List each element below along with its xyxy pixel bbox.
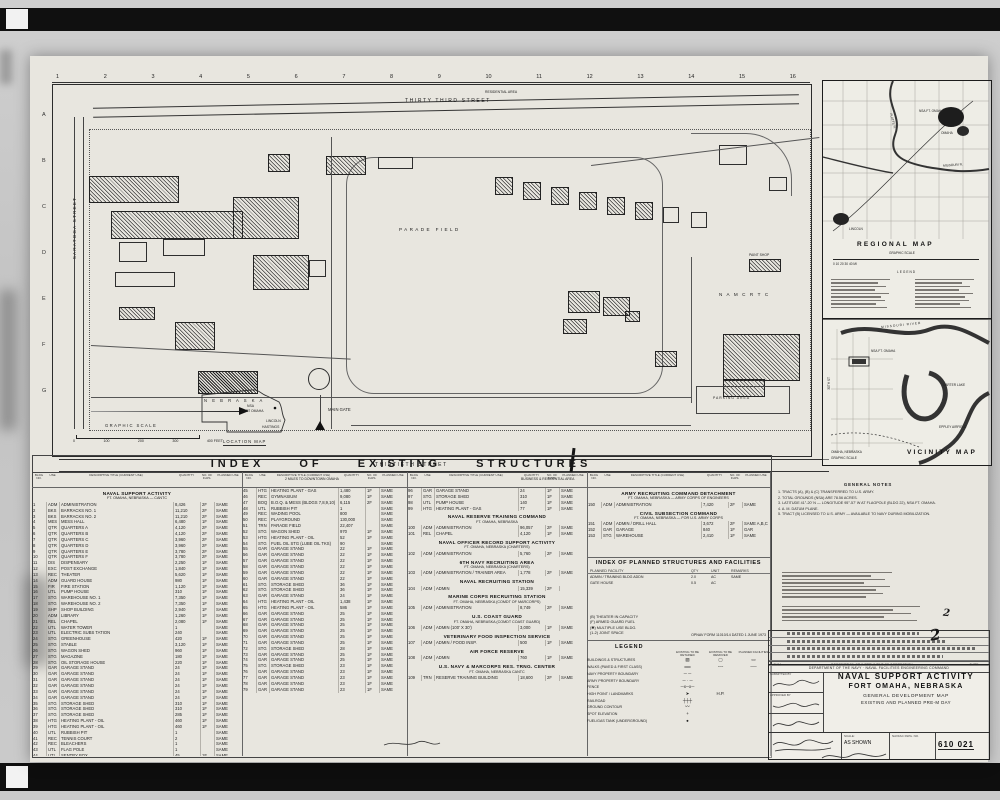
illegible-text-line — [915, 282, 962, 284]
grid-number: 16 — [790, 74, 796, 80]
title-block-main: NAVAL SUPPORT ACTIVITY FORT OMAHA, NEBRA… — [823, 672, 989, 705]
revision-row — [769, 653, 989, 660]
regional-map-drawing — [823, 81, 989, 239]
building — [111, 211, 243, 239]
building — [625, 311, 640, 322]
illegible-text-line — [782, 596, 866, 598]
index-column-header: DESCRIPTIVE TITLE (CURRENT USE) — [59, 474, 173, 486]
index-section-header: NAVAL RECRUITING STATION — [407, 579, 587, 584]
illegible-text-line — [782, 575, 871, 577]
revision-row — [769, 631, 989, 638]
general-notes: GENERAL NOTES 1. TRACTS (A), (B) & (C) T… — [778, 482, 958, 518]
grid-number: 3 — [151, 74, 154, 80]
grid-number: 15 — [739, 74, 745, 80]
illegible-text-line — [915, 289, 959, 291]
index-row: 150ADMADMINISTRATION7,4202FSAME — [587, 502, 770, 508]
illegible-text-line — [831, 289, 875, 291]
planned-index-footnote: OPNAV FORM 11010/14 DATED 1 JUNE 1973 — [691, 633, 766, 637]
building — [378, 157, 413, 169]
regional-legend-left — [831, 277, 895, 310]
index-row: 109TRNRESERVE TRAINING BUILDING18,6002FS… — [407, 675, 587, 681]
illegible-text-line — [782, 616, 884, 618]
index-column-header: QUANTITY — [518, 474, 545, 486]
index-footnotes: (B) THEATER IN CAPACITY(F) ARMED GUARD F… — [590, 615, 700, 637]
index-section-header: NAVAL SUPPORT ACTIVITYFT. OMAHA, NEBRASK… — [32, 491, 242, 501]
regional-legend-right — [915, 277, 979, 310]
lincoln-label: LINCOLN — [266, 419, 281, 423]
grid-number: 11 — [536, 74, 542, 80]
scale-tick: 100 — [103, 439, 109, 443]
scale-label: SCALE: — [844, 734, 887, 738]
grid-letter: B — [42, 158, 46, 164]
vicinity-street-label: 30TH ST — [827, 377, 831, 390]
legend-row: GROUND CONTOUR〰 — [587, 704, 770, 711]
signature-cell — [769, 714, 823, 734]
legend-row: SPOT ELEVATION+ — [587, 711, 770, 718]
building — [769, 177, 787, 191]
drawing-title: GENERAL DEVELOPMENT MAP — [823, 694, 989, 699]
state-label: N E B R A S K A — [204, 398, 264, 403]
map-grid-letters: ABCDEFG — [42, 112, 50, 442]
building — [579, 192, 597, 210]
index-column-group-1: BLDG NO.USEDESCRIPTIVE TITLE (CURRENT US… — [32, 472, 243, 756]
illegible-text-line — [782, 589, 876, 591]
index-row: 106ADMADMIN (100' X 30')3,0001FSAME — [407, 625, 587, 631]
dwg-number: 610 021 — [938, 740, 974, 750]
illegible-text-line — [782, 609, 893, 611]
index-section-header: MARINE CORPS RECRUITING STATIONFT. OMAHA… — [407, 594, 587, 604]
scale-tick: 0 — [73, 439, 75, 443]
index-row: 103ADMADMINISTRATION / TRAINER AREA1,778… — [407, 570, 587, 576]
index-column-header: NO. OF FLRS. — [365, 474, 379, 486]
vicinity-map-title: VICINITY MAP — [907, 449, 977, 456]
index-column-header: USE — [256, 474, 269, 486]
illegible-text-line — [831, 279, 890, 281]
planned-column-header: REMARKS — [731, 569, 767, 573]
illegible-text-line — [782, 582, 864, 584]
illegible-text-line — [915, 307, 971, 309]
index-row: 44UTLSENTRY BOX451FSAME — [32, 753, 242, 756]
grid-number: 6 — [295, 74, 298, 80]
submitted-label: SUBMITTED BY — [769, 672, 823, 676]
vicinity-city-label: OMAHA, NEBRASKA — [831, 450, 862, 454]
fort-omaha-label: FORT OMAHA — [241, 409, 263, 413]
legend-row: HIGH POINT / LANDMARKS➤H.P. — [587, 691, 770, 698]
index-column-header: DESCRIPTIVE TITLE (CURRENT USE) — [269, 474, 338, 486]
illegible-text-line — [782, 606, 920, 608]
vicinity-airfield-label: EPPLEY AIRFIELD — [939, 425, 966, 429]
building — [308, 368, 330, 390]
planned-index-title: INDEX OF PLANNED STRUCTURES AND FACILITI… — [587, 557, 770, 566]
legend-row: BUILDINGS & STRUCTURES▨▢▭ — [587, 657, 770, 664]
illegible-text-line — [831, 286, 886, 288]
index-row: 79GARGARAGE STAND231FSAME — [242, 687, 407, 693]
road-line — [91, 397, 691, 398]
residential-area-label: RESIDENTIAL AREA — [485, 90, 517, 94]
index-row: 105ADMADMINISTRATION8,7492FSAME — [407, 605, 587, 611]
index-column-header: BLDG NO. — [32, 474, 46, 486]
legend-row: FUEL/GAS TANK (UNDERGROUND)● — [587, 718, 770, 725]
index-section-header: 6TH NAVY RECRUITING AREAFT. OMAHA, NEBRA… — [407, 560, 587, 570]
index-section-header: U.S. NAVY & MARCORPS RES. TRNG. CENTERFT… — [407, 664, 587, 674]
building — [568, 291, 600, 313]
drawing-subtitle: EXISTING AND PLANNED PRE-M DAY — [823, 700, 989, 705]
regional-map-title: REGIONAL MAP — [857, 241, 934, 248]
dwg-number-cell: 610 021 — [935, 733, 989, 759]
index-header-row: BLDG NO.USEDESCRIPTIVE TITLE (CURRENT US… — [407, 472, 587, 488]
nsa-label: NSA — [247, 404, 254, 408]
building — [563, 319, 587, 334]
drawing-sheet: 12345678910111213141516 ABCDEFG THIRTY T… — [30, 56, 988, 762]
title-block: DEPARTMENT OF THE NAVY · NAVAL FACILITIE… — [768, 664, 990, 760]
regional-nsa-label: NSA FT. OMAHA — [919, 109, 943, 113]
revision-row — [769, 646, 989, 653]
grid-letter: C — [42, 204, 46, 210]
illegible-text-line — [915, 293, 973, 295]
scanned-photo-of-drawing: 12345678910111213141516 ABCDEFG THIRTY T… — [0, 0, 1000, 800]
illegible-text-line — [915, 279, 974, 281]
planned-column-header: UNIT — [711, 569, 731, 573]
index-column-header: QUANTITY — [338, 474, 365, 486]
handwritten-mark: 2 — [929, 625, 942, 644]
building — [115, 272, 175, 287]
illegible-text-line — [915, 303, 960, 305]
illegible-text-line — [831, 307, 887, 309]
parade-field-label: PARADE FIELD — [399, 227, 461, 232]
building — [655, 351, 677, 367]
building — [607, 197, 625, 215]
building — [309, 260, 326, 277]
regional-scale-bar — [833, 259, 979, 260]
index-section-header: CIVIL SUBSECTION COMMANDFT. OMAHA, NEBRA… — [587, 511, 770, 521]
street-line — [83, 117, 84, 429]
street-label: THIRTY THIRD STREET — [405, 98, 491, 104]
graphic-scale-label: GRAPHIC SCALE — [105, 423, 157, 428]
index-column-header: USE — [421, 474, 434, 486]
planned-column-header: QTY — [691, 569, 711, 573]
handwritten-annotation — [820, 750, 890, 764]
paint-shop-label: PAINT SHOP — [749, 253, 769, 257]
planned-row: GATE HOUSE0.5AC — [587, 580, 770, 586]
approved-cell: APPROVED BY — [769, 693, 823, 714]
index-column-group-4: BLDG NO.USEDESCRIPTIVE TITLE (CURRENT US… — [587, 472, 771, 558]
vicinity-lake-label: CARTER LAKE — [943, 383, 965, 387]
index-row: 108ADMADMIN7601FSAME — [407, 655, 587, 661]
vicinity-scale-label: GRAPHIC SCALE — [831, 456, 857, 460]
legend-panel: LEGEND EXISTING TO BE RETAINEDEXISTING T… — [587, 640, 771, 756]
photo-bottom-border — [0, 763, 1000, 791]
namcrtc-label: N A M C R T C — [719, 292, 770, 297]
index-column-header: BLDG NO. — [407, 474, 421, 486]
index-column-header: QUANTITY — [173, 474, 200, 486]
grid-number: 8 — [390, 74, 393, 80]
general-note: 5. TRACT (B) LICENSED TO U.S. ARMY — AVA… — [778, 512, 958, 518]
scale-value: AS SHOWN — [844, 740, 887, 746]
index-section-header: AIR FORCE RESERVE — [407, 649, 587, 654]
index-header-row: BLDG NO.USEDESCRIPTIVE TITLE (CURRENT US… — [587, 472, 770, 488]
index-column-header: PLANNED USE — [379, 474, 407, 486]
index-column-header: PLANNED USE — [742, 474, 770, 486]
index-column-header: USE — [601, 474, 614, 486]
index-row: 101RELCHAPEL4,1201FSAME — [407, 531, 587, 537]
regional-map-inset: NSA FT. OMAHA OMAHA LINCOLN PLATTE R. MI… — [822, 80, 992, 320]
vicinity-map-inset: MISSOURI RIVER NSA FT. OMAHA CARTER LAKE… — [822, 318, 992, 466]
grid-number: 5 — [247, 74, 250, 80]
scale-tick: 300 — [172, 439, 178, 443]
index-column-group-3: BLDG NO.USEDESCRIPTIVE TITLE (CURRENT US… — [407, 472, 588, 756]
film-notch — [6, 9, 28, 29]
film-notch — [6, 766, 28, 788]
index-row: 102ADMADMINISTRATION5,7602FSAME — [407, 551, 587, 557]
index-header-row: BLDG NO.USEDESCRIPTIVE TITLE (CURRENT US… — [32, 472, 242, 488]
main-gate-arrow-icon — [315, 421, 325, 430]
building — [119, 307, 155, 320]
illegible-text-line — [831, 303, 876, 305]
illegible-text-line — [831, 282, 878, 284]
revision-row — [769, 638, 989, 645]
index-section-header: VETERINARY FOOD INSPECTION SERVICE — [407, 634, 587, 639]
regional-lincoln-label: LINCOLN — [849, 227, 863, 231]
grid-letter: E — [42, 296, 46, 302]
grid-number: 7 — [342, 74, 345, 80]
grid-letter: F — [42, 342, 45, 348]
planned-column-header: PLANNED FACILITY — [590, 569, 691, 573]
grid-number: 2 — [104, 74, 107, 80]
grid-number: 4 — [199, 74, 202, 80]
regional-scale-label: GRAPHIC SCALE — [889, 251, 915, 255]
illegible-text-line — [782, 613, 911, 615]
index-row: 153STGWAREHOUSE2,4101FSAME — [587, 533, 770, 539]
footnote: (1-2) JOINT SPACE — [590, 631, 700, 636]
index-title-band: INDEX OF EXISTING STRUCTURES — [32, 455, 770, 473]
index-column-header: NO. OF FLRS. — [200, 474, 214, 486]
grid-letter: A — [42, 112, 46, 118]
index-row: 104ADMADMIN15,3392F — [407, 586, 587, 592]
index-title: INDEX OF EXISTING STRUCTURES — [211, 458, 592, 470]
building — [551, 187, 569, 205]
index-section-header: NAVAL RESERVE TRAINING COMMANDFT. OMAHA,… — [407, 514, 587, 524]
illegible-text-line — [831, 300, 885, 302]
submitted-cell: SUBMITTED BY — [769, 672, 823, 693]
illegible-text-line — [915, 296, 965, 298]
illegible-text-line — [782, 572, 892, 574]
index-column-header: DESCRIPTIVE TITLE (CURRENT USE) — [614, 474, 701, 486]
building — [635, 202, 653, 220]
index-section-header: NAVAL OFFICER RECORD SUPPORT ACTIVITYFT.… — [407, 540, 587, 550]
revision-table: SYM DESCRIPTION OR INSTRUMENT OF CORRECT… — [768, 630, 990, 666]
site-plan-map: THIRTY THIRD STREET RESIDENTIAL AREA SAR… — [52, 84, 812, 457]
handwritten-mark: 2 — [942, 608, 950, 620]
grid-number: 9 — [438, 74, 441, 80]
building — [495, 177, 513, 195]
illegible-text-line — [915, 300, 969, 302]
building — [175, 322, 215, 350]
general-notes-title: GENERAL NOTES — [778, 482, 958, 487]
building — [523, 182, 541, 200]
legend-row: WALKS (PAVED & FIRST CLASS)══╌╌── — [587, 664, 770, 671]
index-column-header: PLANNED USE — [214, 474, 242, 486]
illegible-text-line — [782, 586, 890, 588]
grid-number: 12 — [587, 74, 593, 80]
illegible-text-line — [782, 593, 883, 595]
legend-row: FENCE─x─x─ — [587, 684, 770, 691]
street-label: SARATOGA STREET — [72, 197, 77, 259]
parking-area-label: PARKING AREA — [713, 396, 750, 400]
index-column-header: BLDG NO. — [587, 474, 601, 486]
building — [163, 239, 205, 256]
photo-top-border — [0, 8, 1000, 31]
legend-row: NAVY PROPERTY BOUNDARY─ ─ — [587, 671, 770, 678]
illegible-text-line — [831, 293, 889, 295]
map-grid-numbers: 12345678910111213141516 — [56, 74, 796, 80]
photo-artifact — [0, 290, 16, 430]
activity-location: FORT OMAHA, NEBRASKA — [823, 683, 989, 690]
dwg-label-cell: NAVFAC DWG. NO. — [889, 733, 935, 759]
grid-number: 10 — [485, 74, 491, 80]
road-line — [331, 137, 332, 429]
grid-number: 13 — [637, 74, 643, 80]
approved-label: APPROVED BY — [769, 693, 823, 697]
grid-letter: G — [42, 388, 46, 394]
vicinity-map-drawing — [823, 319, 989, 463]
photo-artifact — [0, 50, 12, 84]
index-column-header: NO. OF FLRS. — [728, 474, 742, 486]
building — [89, 176, 179, 203]
index-section-header: U.S. COAST GUARDFT. OMAHA, NEBRASKA (COM… — [407, 614, 587, 624]
street-line — [74, 117, 75, 429]
building — [691, 212, 707, 228]
building — [119, 242, 147, 262]
dwg-number-label: NAVFAC DWG. NO. — [892, 734, 933, 738]
vicinity-nsa-label: NSA FT. OMAHA — [871, 349, 895, 353]
building — [233, 197, 299, 239]
building — [253, 255, 309, 290]
building — [326, 156, 366, 175]
illegible-text-line — [915, 286, 970, 288]
index-column-group-2: BLDG NO.USEDESCRIPTIVE TITLE (CURRENT US… — [242, 472, 408, 756]
grid-letter: D — [42, 250, 46, 256]
illegible-text-line — [782, 620, 917, 622]
grid-number: 14 — [688, 74, 694, 80]
grid-number: 1 — [56, 74, 59, 80]
general-note: 3. LATITUDE 41°-20' N — LONGITUDE 95°-57… — [778, 501, 958, 507]
road-line — [691, 257, 692, 403]
location-map-caption: LOCATION MAP — [223, 439, 266, 446]
index-row: 99HTGHEATING PLANT - GAS771FSAME — [407, 506, 587, 512]
building — [723, 334, 800, 381]
index-column-header: DESCRIPTIVE TITLE (CURRENT USE) — [434, 474, 518, 486]
fine-print-block — [782, 570, 902, 600]
scale-tick: 200 — [138, 439, 144, 443]
regional-legend-title: LEGEND — [897, 270, 916, 274]
index-header-row: BLDG NO.USEDESCRIPTIVE TITLE (CURRENT US… — [242, 472, 407, 488]
activity-title: NAVAL SUPPORT ACTIVITY — [823, 672, 989, 681]
index-row: 107ADMADMIN / FOOD INSP.5001FSAME — [407, 640, 587, 646]
index-column-header: QUANTITY — [701, 474, 728, 486]
legend-row: ARMY PROPERTY BOUNDARY─ · ─ — [587, 678, 770, 685]
index-column-header: BLDG NO. — [242, 474, 256, 486]
fine-print-block — [782, 604, 932, 623]
handwritten-annotation — [382, 738, 442, 750]
parking-area — [696, 386, 790, 414]
legend-row: RAILROAD┼┼┼ — [587, 698, 770, 705]
index-column-header: NO. OF FLRS. — [545, 474, 559, 486]
building — [749, 259, 781, 272]
illegible-text-line — [831, 296, 881, 298]
index-column-header: USE — [46, 474, 59, 486]
building — [268, 154, 290, 172]
regional-omaha-label: OMAHA — [941, 131, 953, 135]
illegible-text-line — [782, 579, 885, 581]
regional-scale-ticks: 0 10 20 30 40 MI — [833, 262, 979, 266]
hastings-label: HASTINGS — [262, 425, 279, 429]
index-section-header: ARMY RECRUITING COMMAND DETACHMENTFT. OM… — [587, 491, 770, 501]
building — [663, 207, 679, 223]
road-line — [351, 425, 691, 426]
signature-cells: SUBMITTED BY APPROVED BY — [769, 672, 824, 732]
index-column-header: PLANNED USE — [559, 474, 587, 486]
main-gate-label: MAIN GATE — [328, 407, 351, 412]
